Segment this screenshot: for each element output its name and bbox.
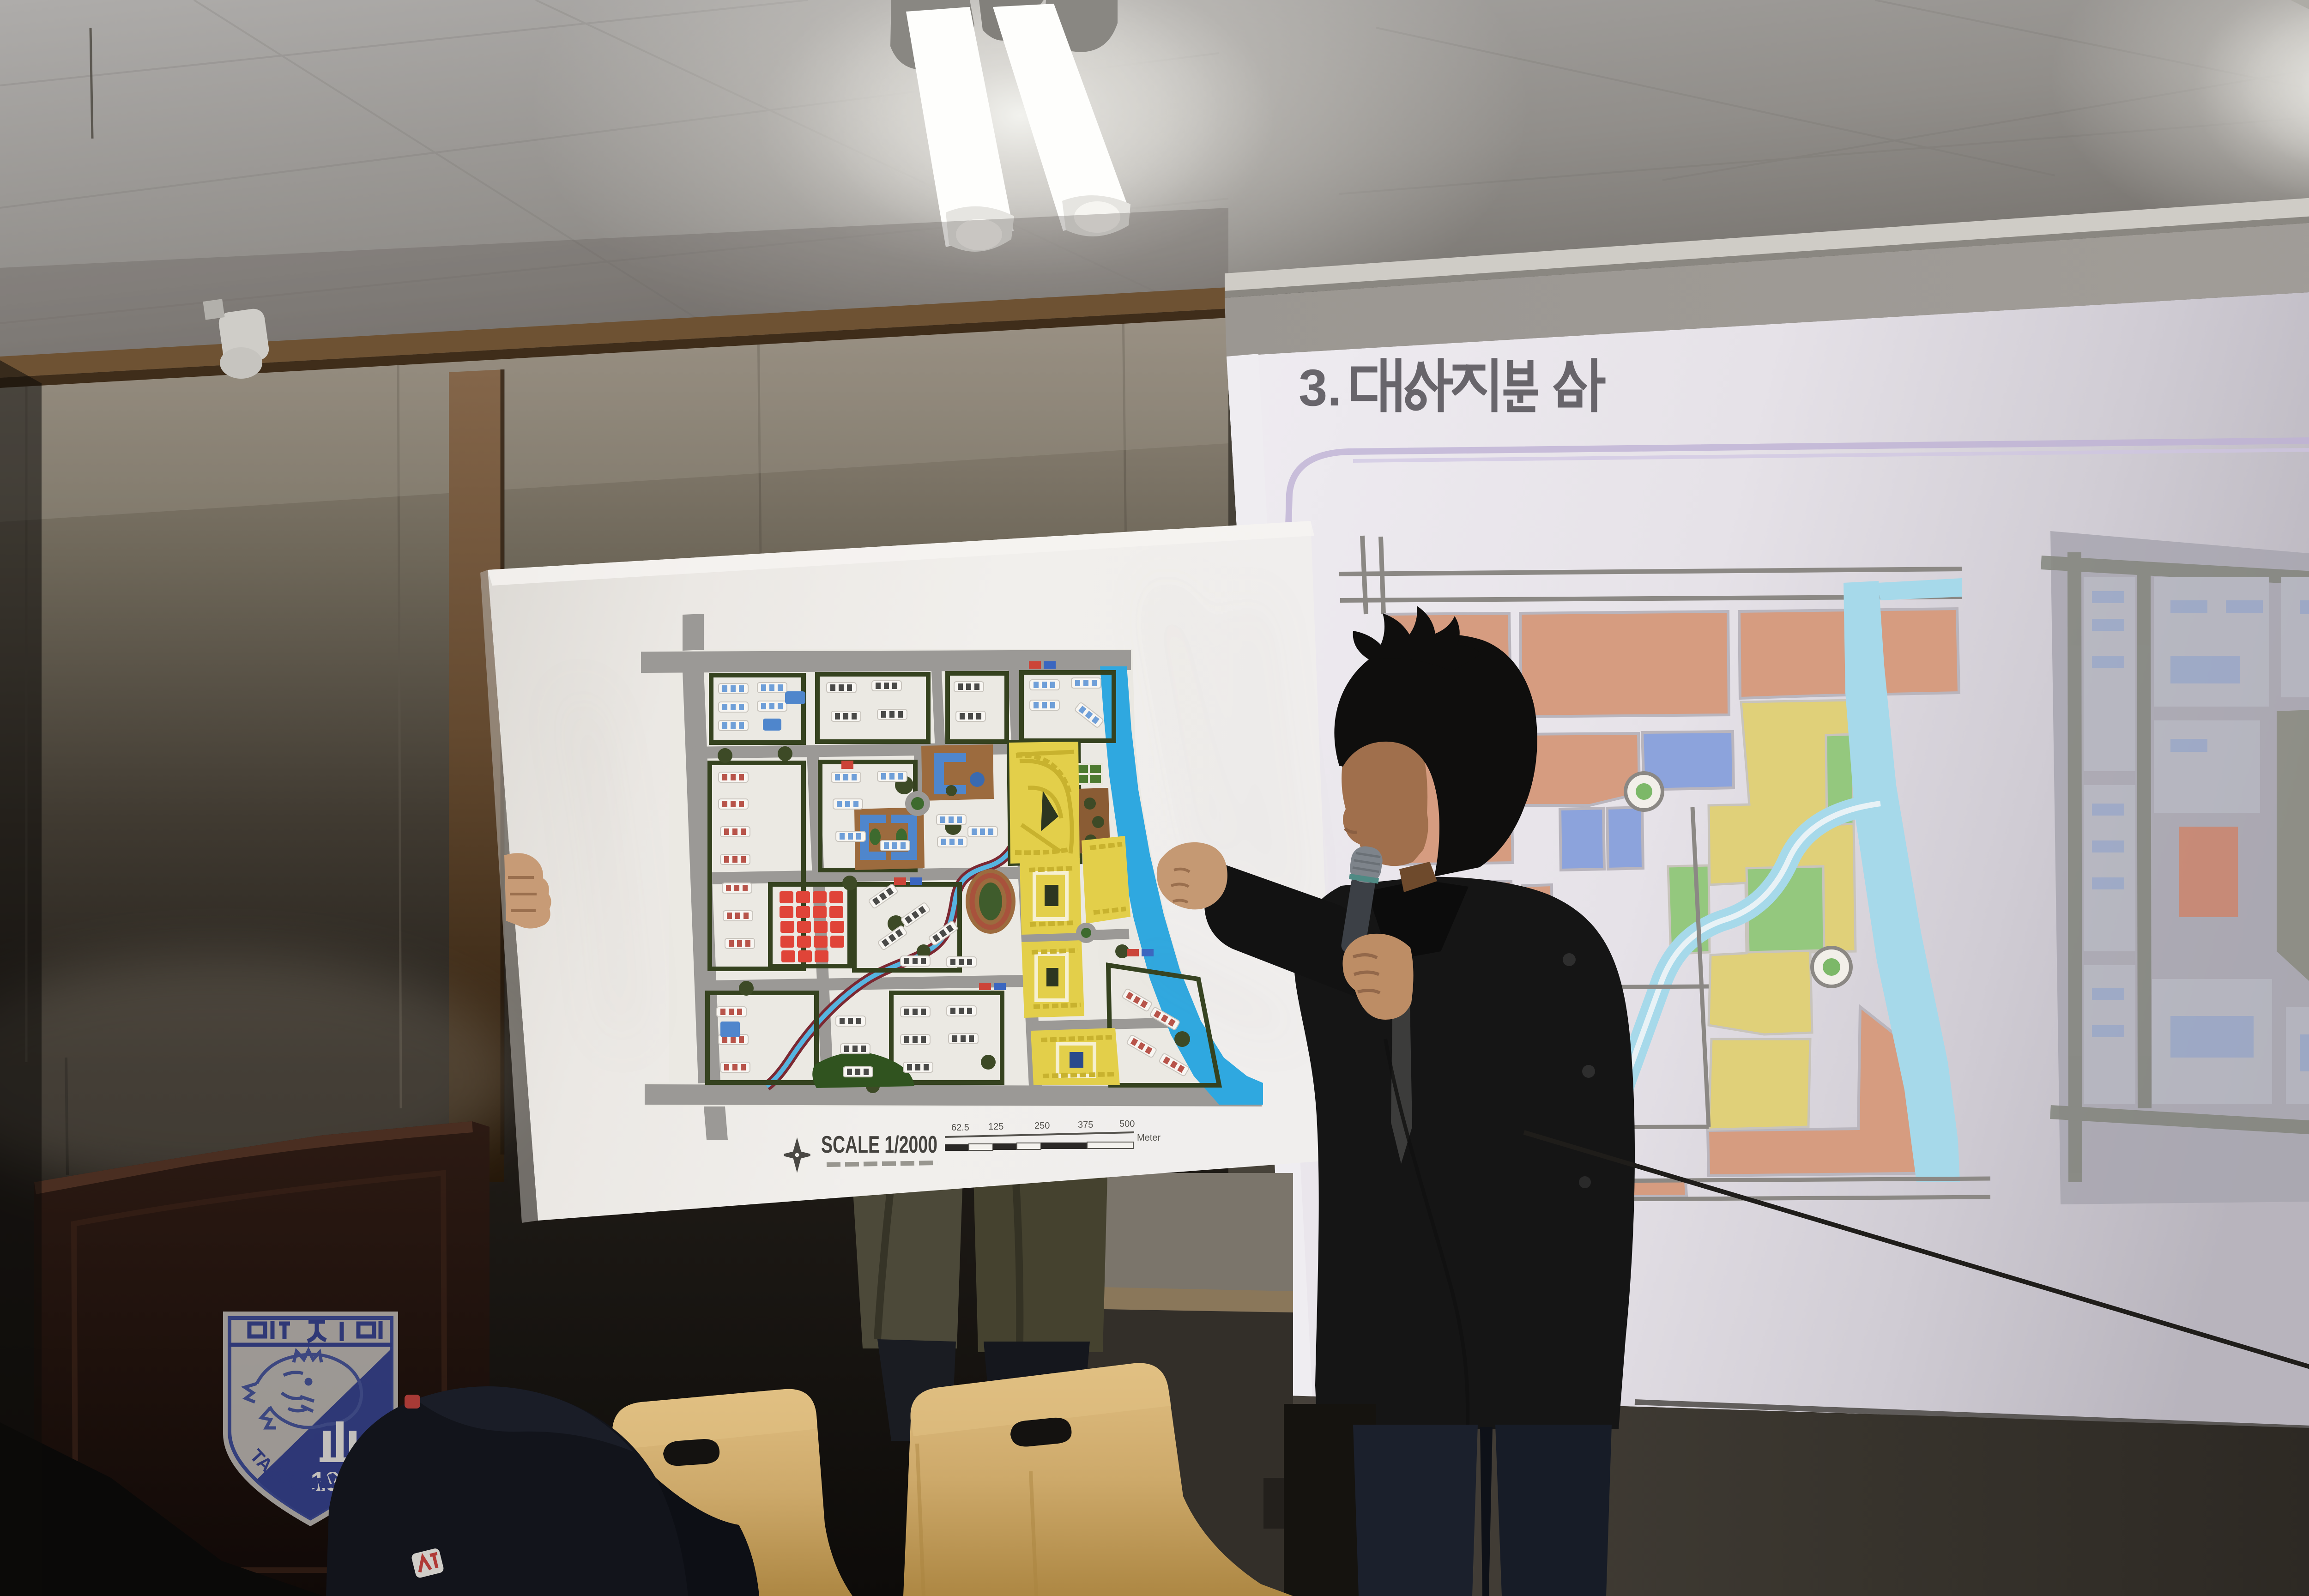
svg-text:Meter: Meter [1137,1133,1161,1143]
svg-text:125: 125 [988,1122,1003,1132]
svg-text:500: 500 [1119,1119,1135,1129]
svg-text:250: 250 [1034,1121,1050,1131]
svg-text:375: 375 [1078,1120,1093,1130]
svg-text:SCALE 1/2000: SCALE 1/2000 [821,1131,937,1158]
svg-text:3.: 3. [1299,359,1342,417]
svg-text:62.5: 62.5 [951,1123,969,1133]
